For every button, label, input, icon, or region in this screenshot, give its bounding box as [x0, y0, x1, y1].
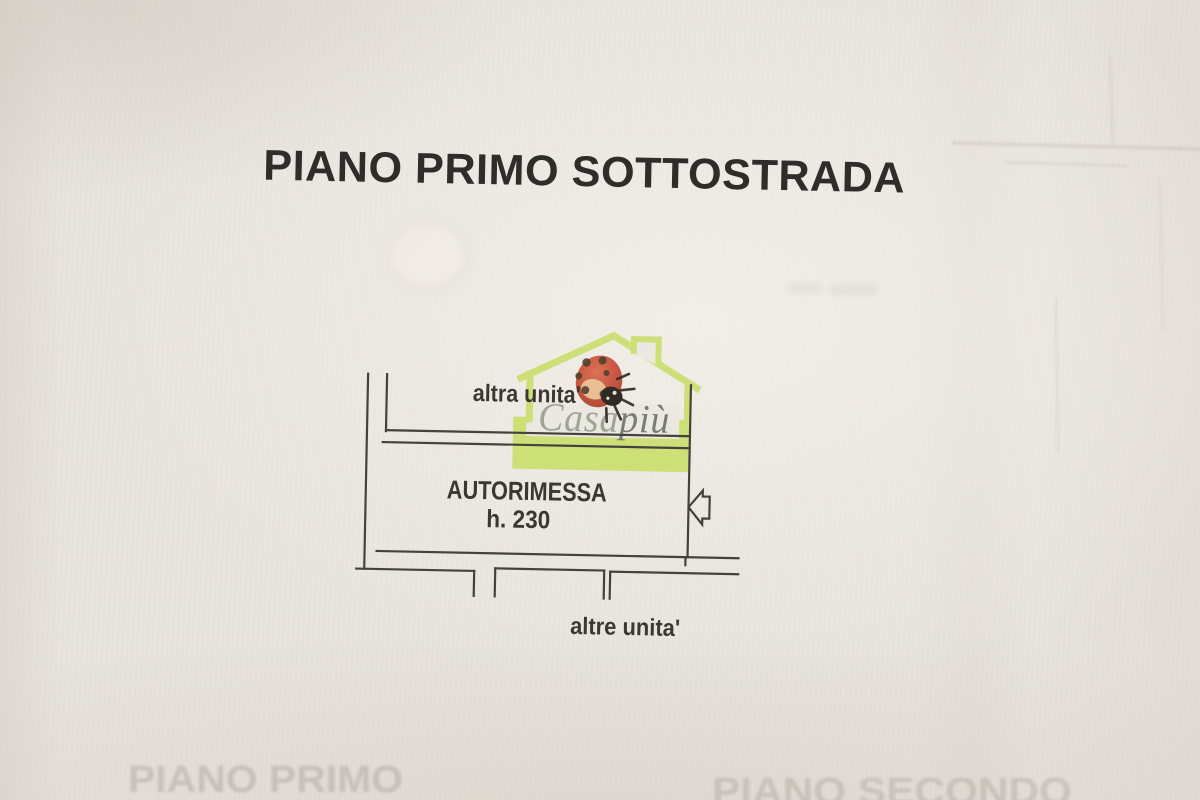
lower-right-wall-line	[610, 572, 738, 575]
chimney-icon	[633, 339, 659, 365]
opening-jamb-line-3	[604, 571, 605, 599]
ghost-ring-smudge	[388, 221, 468, 289]
label-altra-unita: altra unita'	[472, 380, 581, 409]
floor-plan-drawing: PIANO PRIMO PIANO SECONDO	[0, 0, 1200, 800]
outer-left-wall-line	[364, 374, 368, 569]
label-altre-unita: altre unita'	[570, 613, 681, 642]
opening-jamb-line-1	[474, 571, 475, 596]
bleed-through-text-left: PIANO PRIMO	[128, 759, 403, 800]
label-room-height: h. 230	[486, 505, 551, 534]
opening-jamb-line-4	[610, 572, 611, 599]
lower-middle-wall-line	[495, 568, 604, 570]
label-autorimessa: AUTORIMESSA	[447, 474, 608, 507]
page-title: PIANO PRIMO SOTTOSTRADA	[263, 142, 906, 203]
door-arrow-icon	[688, 490, 710, 524]
bleed-through-text-right: PIANO SECONDO	[712, 771, 1072, 800]
opening-jamb-line-2	[495, 568, 496, 596]
inner-left-wall-line	[386, 374, 387, 431]
lower-left-wall-line	[356, 569, 474, 571]
faint-smudges	[788, 283, 878, 295]
scanned-floor-plan-page: PIANO PRIMO PIANO SECONDO	[0, 0, 1200, 800]
room-bottom-wall-line	[377, 551, 739, 558]
